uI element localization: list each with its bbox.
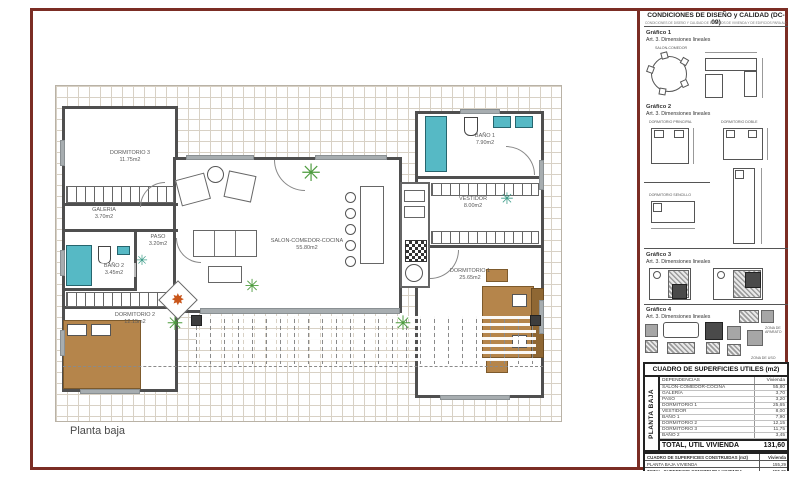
pillow-mini-icon [726, 130, 735, 138]
cell-value: 155,29 [759, 468, 787, 471]
room-label-galeria: GALERIA 3.70m2 [74, 207, 134, 221]
pergola-porch [196, 316, 536, 364]
room-area: 12.15m2 [100, 319, 170, 326]
rule [644, 26, 788, 27]
room-label-dormitorio-1: DORMITORIO 1 25.65m2 [430, 268, 510, 282]
grafico-4-label: Gráfico 4 [646, 307, 671, 313]
single-bed-mini-icon [733, 168, 755, 244]
pillow-mini-icon [748, 130, 757, 138]
cell-label: BAÑO 2 [660, 433, 754, 438]
room-area: 25.65m2 [430, 275, 510, 282]
room-name: DORMITORIO 3 [95, 150, 165, 157]
kitchen-sink-icon [404, 190, 425, 202]
grafico-3-label: Gráfico 3 [646, 252, 671, 258]
plant-glyph: ✳ [301, 159, 321, 188]
pillow-mini-icon [653, 203, 662, 212]
room-name: GALERIA [74, 207, 134, 214]
table-row: PLANTA BAJA VIVIENDA 155,29 [645, 461, 787, 468]
window [440, 395, 510, 400]
rule [644, 182, 710, 183]
wall-bano2-bottom [62, 288, 137, 291]
basin-mini-icon [653, 271, 661, 279]
col-vivienda: Vivienda [754, 377, 787, 384]
utiles-side-label: PLANTA BAJA [648, 389, 655, 439]
room-area: 7.90m2 [455, 140, 515, 147]
toilet-icon [98, 246, 111, 264]
porch-pillar [191, 315, 202, 326]
chair-icon [658, 87, 666, 95]
window [60, 140, 65, 166]
cell-value: 7,90 [754, 415, 787, 420]
wall-vestidor-bottom [415, 245, 544, 248]
drawing-sheet: ✳ ✳ ✳ ✳ ✳ ✳ ✸ DORMITORIO 3 11.75m2 GALER… [0, 0, 800, 480]
room-name: SALON-COMEDOR-COCINA [252, 238, 362, 245]
chair-icon [680, 79, 689, 88]
plant-icon: ✳ [134, 252, 150, 268]
pillow-icon [512, 294, 527, 307]
construidas-title: CUADRO DE SUPERFICIES CONSTRUIDAS (m2) [645, 455, 759, 460]
shower-mini-icon [672, 284, 687, 299]
room-area: 3.20m2 [138, 241, 178, 248]
pillow-icon [67, 324, 87, 336]
room-name: VESTIDOR [443, 196, 503, 203]
clearance-hatch [727, 344, 741, 356]
window [539, 160, 544, 190]
grafico-2-caption-c: DORMITORIO SENCILLO [649, 193, 691, 197]
grafico-1-caption: SALON-COMEDOR [655, 46, 687, 50]
grafico-2-caption-a: DORMITORIO PRINCIPAL [649, 120, 692, 124]
stool-icon [345, 256, 356, 267]
cell-value: 155,29 [759, 461, 787, 467]
room-label-paso: PASO 3.20m2 [138, 234, 178, 248]
overhang-dashed-line [63, 366, 543, 367]
room-name: DORMITORIO 2 [100, 312, 170, 319]
plant-glyph: ✳ [244, 276, 259, 297]
window [460, 109, 500, 114]
table-superficies-utiles: CUADRO DE SUPERFICIES UTILES (m2) PLANTA… [643, 362, 789, 452]
plant-glyph: ✳ [395, 311, 412, 336]
cell-label: TOTAL, SUPERFICIE CONSTRUIDA VIVIENDA [645, 469, 759, 471]
washbasin-icon [493, 116, 511, 128]
room-label-bano-1: BAÑO 1 7.90m2 [455, 133, 515, 147]
pillow-mini-icon [674, 130, 684, 138]
cell-label: DORMITORIO 3 [660, 427, 754, 432]
porch-pillar [530, 315, 541, 326]
cell-value: 11,75 [754, 427, 787, 432]
room-label-dormitorio-3: DORMITORIO 3 11.75m2 [95, 150, 165, 164]
cell-label: DORMITORIO 1 [660, 403, 754, 408]
room-area: 11.75m2 [95, 157, 165, 164]
clearance-hatch [739, 310, 759, 323]
room-name: BAÑO 1 [455, 133, 515, 140]
kitchen-sink2-icon [404, 206, 425, 218]
zone-label-b: ZONA DE USO [751, 356, 776, 360]
window-band [200, 308, 400, 314]
room-label-dormitorio-2: DORMITORIO 2 12.15m2 [100, 312, 170, 326]
stool-icon [345, 192, 356, 203]
plant-icon: ✳ [298, 160, 324, 186]
wall-bano1-bottom [415, 176, 544, 179]
pillow-icon [91, 324, 111, 336]
window [80, 389, 140, 394]
cell-value: 8,00 [754, 409, 787, 414]
grafico-2-label: Gráfico 2 [646, 104, 671, 110]
utiles-title: CUADRO DE SUPERFICIES UTILES (m2) [645, 364, 787, 377]
rule [644, 248, 788, 249]
cell-label: SALON-COMEDOR-COCINA [660, 385, 754, 390]
coffee-table-icon [208, 266, 242, 283]
clearance-gray [747, 330, 763, 346]
plant-icon: ✳ [392, 312, 414, 334]
table-row: TOTAL, SUPERFICIE CONSTRUIDA VIVIENDA 15… [645, 468, 787, 471]
clearance-gray [761, 310, 774, 323]
dimension-line [705, 52, 757, 53]
zone-label-a: ZONA DE APARATO [765, 326, 789, 334]
grafico-3-art: Art. 3. Dimensiones lineales [646, 259, 710, 265]
dimension-line [762, 58, 763, 98]
room-area: 8.00m2 [443, 203, 503, 210]
bathtub-mini-icon [663, 322, 699, 338]
cell-value: 55,80 [754, 385, 787, 390]
plant-icon: ✳ [242, 276, 262, 296]
grafico-2-art: Art. 3. Dimensiones lineales [646, 111, 710, 117]
panel-divider [637, 8, 640, 470]
room-name: BAÑO 2 [92, 263, 136, 270]
washbasin-icon [117, 246, 130, 255]
cell-label: VESTIDOR [660, 409, 754, 414]
dimension-line [767, 128, 768, 160]
room-area: 55.80m2 [252, 245, 362, 252]
compass-star-icon: ✸ [171, 290, 184, 310]
floor-title: Planta baja [70, 425, 125, 437]
grafico-1-label: Gráfico 1 [646, 30, 671, 36]
construidas-header-row: CUADRO DE SUPERFICIES CONSTRUIDAS (m2) V… [645, 454, 787, 461]
clearance-hatch [706, 342, 720, 354]
window [315, 155, 387, 160]
side-table-icon [207, 166, 224, 183]
shower-mini-icon [745, 272, 761, 288]
cell-value: 3,45 [754, 433, 787, 438]
stool-icon [345, 224, 356, 235]
clearance-hatch [667, 342, 695, 354]
sofa-icon [193, 230, 257, 257]
wardrobe-vestidor-bottom [431, 231, 539, 244]
utiles-header-row: DEPENDENCIAS Vivienda [660, 377, 787, 385]
col-dependencias: DEPENDENCIAS [660, 378, 754, 383]
plant-glyph: ✳ [136, 252, 148, 269]
clearance-gray [645, 324, 658, 337]
clearance-gray [727, 326, 741, 340]
cell-value: 3,20 [754, 397, 787, 402]
sofa-mini-icon [705, 58, 757, 71]
room-name: PASO [138, 234, 178, 241]
grafico-1-art: Art. 3. Dimensiones lineales [646, 37, 710, 43]
col-vivienda: Vivienda [759, 454, 787, 460]
washbasin-icon [515, 116, 533, 128]
window [186, 155, 254, 160]
grafico-4-art: Art. 3. Dimensiones lineales [646, 314, 710, 320]
cell-label: PLANTA BAJA VIVIENDA [645, 462, 759, 467]
sofa-mini-icon [744, 71, 757, 97]
room-name: DORMITORIO 1 [430, 268, 510, 275]
cell-value: 3,70 [754, 391, 787, 396]
kitchen-hob-icon [405, 240, 427, 262]
total-value: 131,60 [753, 442, 787, 449]
total-label: TOTAL, ÚTIL VIVIENDA [660, 442, 753, 449]
room-label-bano-2: BAÑO 2 3.45m2 [92, 263, 136, 277]
dimension-line [651, 228, 695, 229]
cell-label: GALERÍA [660, 391, 754, 396]
panel-subtitle: CONDICIONES DE DISEÑO Y CALIDAD DE EDIFI… [645, 21, 787, 25]
dimension-line [761, 168, 762, 244]
cell-value: 25,65 [754, 403, 787, 408]
chaise-mini-icon [705, 74, 723, 98]
basin-mini-icon [717, 271, 725, 279]
room-area: 3.70m2 [74, 214, 134, 221]
window [60, 250, 65, 276]
utiles-total-row: TOTAL, ÚTIL VIVIENDA 131,60 [660, 439, 787, 450]
window [60, 330, 65, 356]
shower-icon [66, 245, 92, 286]
room-label-vestidor: VESTIDOR 8.00m2 [443, 196, 503, 210]
wardrobe-vestidor-top [431, 183, 539, 196]
dimension-line [693, 128, 694, 164]
cell-label: PASO [660, 397, 754, 402]
stool-icon [345, 208, 356, 219]
room-label-salon: SALON-COMEDOR-COCINA 55.80m2 [252, 238, 362, 252]
bathtub-icon [425, 116, 447, 172]
wall-galeria-bottom [62, 229, 178, 232]
cell-label: DORMITORIO 2 [660, 421, 754, 426]
table-superficies-construidas: CUADRO DE SUPERFICIES CONSTRUIDAS (m2) V… [643, 452, 789, 471]
dining-island [360, 186, 384, 264]
pillow-mini-icon [654, 130, 664, 138]
clearance-hatch [645, 340, 658, 353]
grafico-2-caption-b: DORMITORIO DOBLE [721, 120, 757, 124]
rule [644, 304, 788, 305]
cell-label: BAÑO 1 [660, 415, 754, 420]
utiles-side-cell: PLANTA BAJA [645, 377, 660, 450]
cell-value: 12,15 [754, 421, 787, 426]
shower-mini-icon [705, 322, 723, 340]
armchair-icon [223, 170, 256, 202]
room-area: 3.45m2 [92, 270, 136, 277]
pillow-mini-icon [735, 170, 744, 179]
kitchen-basin-icon [405, 264, 423, 282]
